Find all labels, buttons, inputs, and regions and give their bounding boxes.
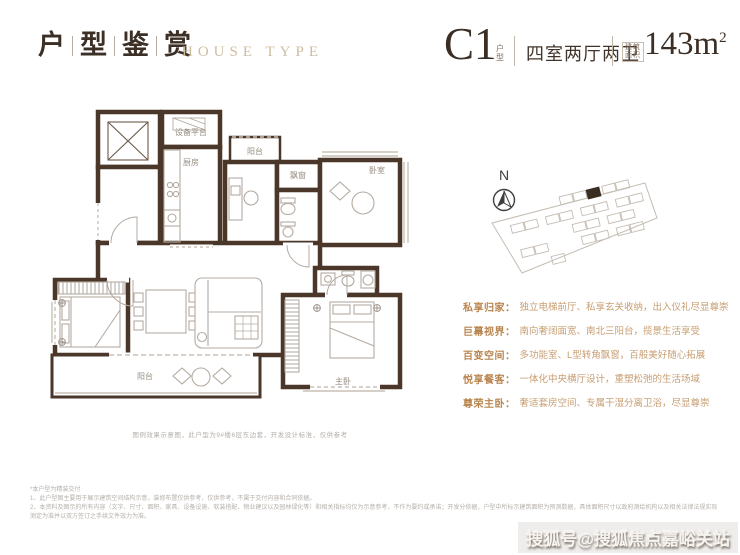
- feature-item: 悦享餐客： 一体化中央横厅设计，重塑松弛的生活场域: [463, 371, 729, 386]
- feature-label: 巨幕视界：: [463, 323, 516, 338]
- disclaimer-item: 1、此户型图主要用于展示建筑空间结构示意，装修布置仅供参考，仅供参考，不属于交付…: [30, 495, 722, 504]
- feature-desc: 独立电梯前厅、私享玄关收纳，出入仪礼尽显尊崇: [520, 299, 729, 314]
- title-char: 型: [80, 32, 107, 59]
- siteplan: N: [470, 160, 730, 285]
- floorplan-drawing: 设备平台 厨房 阳台 飘窗 卧室 阳台 主卧: [25, 90, 455, 440]
- feature-item: 巨幕视界： 南向奢阔面宽、南北三阳台，揽景生活享受: [463, 323, 729, 338]
- unit-code-label-bottom: 型: [496, 53, 505, 62]
- compass-north-label: N: [499, 167, 509, 183]
- disclaimer-item: 2、本资料及图示的所有内容（文字、尺寸、面积、家具、设备设施、软装搭配、物业建议…: [30, 504, 722, 522]
- plan-note: 图例效果示意图，此户型为9#楼6层东边套，开发设计标准，仅供参考: [25, 429, 455, 439]
- area-sup: 2: [719, 30, 727, 46]
- feature-desc: 南向奢阔面宽、南北三阳台，揽景生活享受: [520, 323, 701, 338]
- title-separator: [156, 36, 157, 56]
- feature-list: 私享归家： 独立电梯前厅、私享玄关收纳，出入仪礼尽显尊崇 巨幕视界： 南向奢阔面…: [463, 299, 729, 419]
- room-label-north-balcony: 阳台: [247, 146, 263, 156]
- room-label-master: 主卧: [335, 376, 351, 386]
- page-title: 户 型 鉴 赏: [38, 32, 191, 59]
- siteplan-outline: [492, 183, 657, 273]
- area-label-bottom: 面积: [625, 52, 641, 60]
- watermark: 搜狐号@搜狐焦点嘉峪关站: [518, 522, 738, 553]
- header-divider: [612, 36, 613, 66]
- unit-code: C1: [444, 22, 497, 67]
- feature-label: 私享归家：: [463, 299, 516, 314]
- page-subtitle-en: HOUSE TYPE: [182, 44, 323, 61]
- feature-desc: 奢适套房空间、专属干湿分离卫浴，尽显尊崇: [520, 395, 710, 410]
- siteplan-highlighted-unit: [586, 187, 601, 199]
- compass-icon: N: [494, 167, 515, 211]
- page: 户 型 鉴 赏 HOUSE TYPE C1 户 型 四室两厅两卫 建筑 面积 1…: [0, 0, 740, 555]
- feature-label: 尊荣主卧：: [463, 395, 516, 410]
- title-separator: [72, 36, 73, 56]
- title-char: 鉴: [122, 32, 149, 59]
- room-label-bedroom: 卧室: [369, 165, 385, 175]
- feature-item: 尊荣主卧： 奢适套房空间、专属干湿分离卫浴，尽显尊崇: [463, 395, 729, 410]
- room-label-bay-window: 飘窗: [290, 170, 306, 180]
- room-label-kitchen: 厨房: [183, 157, 199, 167]
- feature-label: 悦享餐客：: [463, 371, 516, 386]
- title-char: 户: [38, 32, 65, 59]
- area-label: 建筑 面积: [622, 42, 644, 62]
- sofa: [195, 278, 262, 348]
- area-value: 143m: [644, 26, 719, 62]
- feature-desc: 多功能室、L型转角飘窗，百般美好随心拓展: [520, 347, 706, 362]
- feature-item: 私享归家： 独立电梯前厅、私享玄关收纳，出入仪礼尽显尊崇: [463, 299, 729, 314]
- feature-label: 百变空间：: [463, 347, 516, 362]
- unit-area: 143m2: [644, 28, 727, 61]
- title-separator: [114, 36, 115, 56]
- area-label-top: 建筑: [625, 44, 641, 52]
- room-label-equipment: 设备平台: [175, 127, 207, 137]
- room-label-south-balcony: 阳台: [137, 371, 153, 381]
- disclaimer-intro: *本户型为精装交付: [30, 486, 722, 495]
- header-divider: [514, 36, 515, 66]
- unit-code-label-top: 户: [496, 44, 505, 53]
- unit-code-label: 户 型: [496, 44, 505, 62]
- siteplan-buildings: [507, 177, 653, 272]
- disclaimer: *本户型为精装交付 1、此户型图主要用于展示建筑空间结构示意，装修布置仅供参考，…: [30, 486, 722, 522]
- feature-item: 百变空间： 多功能室、L型转角飘窗，百般美好随心拓展: [463, 347, 729, 362]
- feature-desc: 一体化中央横厅设计，重塑松弛的生活场域: [520, 371, 701, 386]
